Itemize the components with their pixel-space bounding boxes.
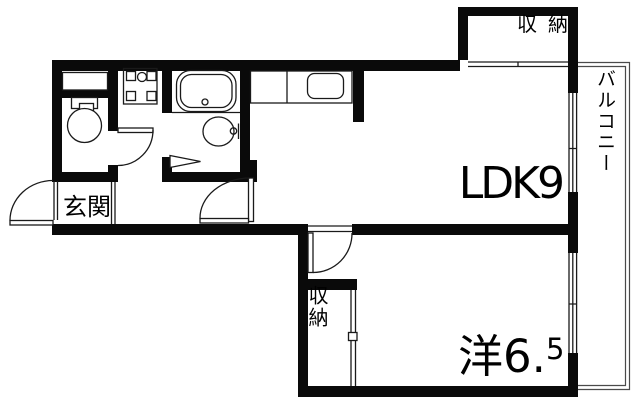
wall-washroom-bottom [162, 172, 257, 182]
floorplan: LDK9 収納 バルコニー 玄関 収納 洋6.5 [0, 0, 640, 401]
room-bathroom [172, 71, 240, 113]
wall-bottom [298, 386, 578, 397]
washing-machine-pan [124, 69, 158, 105]
wall-right-3 [568, 353, 578, 397]
toilet-shelf [63, 73, 108, 91]
genkan-step [112, 182, 116, 224]
wall-ldk-western-divider [352, 224, 578, 235]
window-ldk [569, 93, 577, 192]
sliding-door-closet-top [468, 62, 568, 67]
wall-right-2 [568, 192, 578, 253]
room-toilet [62, 98, 108, 172]
entrance-label: 玄関 [63, 195, 111, 219]
wall-left [52, 60, 62, 181]
wall-closet-left [458, 7, 468, 60]
door-hall-ldk [200, 178, 254, 223]
western-room-label: 洋6.5 [458, 334, 564, 379]
wall-mid-left [52, 224, 308, 235]
room-kitchen [250, 71, 353, 104]
western-room-label-main: 洋6. [458, 330, 546, 383]
door-toilet [118, 128, 153, 166]
wall-toilet-right-upper [108, 60, 118, 131]
western-room-label-sup: 5 [546, 332, 564, 366]
wall-toilet-partition [62, 90, 108, 98]
balcony-label: バルコニー [595, 69, 614, 174]
closet-bottom-label: 収納 [307, 285, 327, 329]
drain-icon [138, 73, 147, 82]
wall-bath-left-upper [162, 60, 172, 113]
room-washroom [172, 115, 240, 172]
wall-toilet-bottom [52, 172, 118, 182]
window-western [569, 253, 577, 353]
ldk-label: LDK9 [440, 162, 562, 206]
door-entrance [10, 181, 58, 226]
closet-top-label: 収納 [517, 14, 579, 34]
